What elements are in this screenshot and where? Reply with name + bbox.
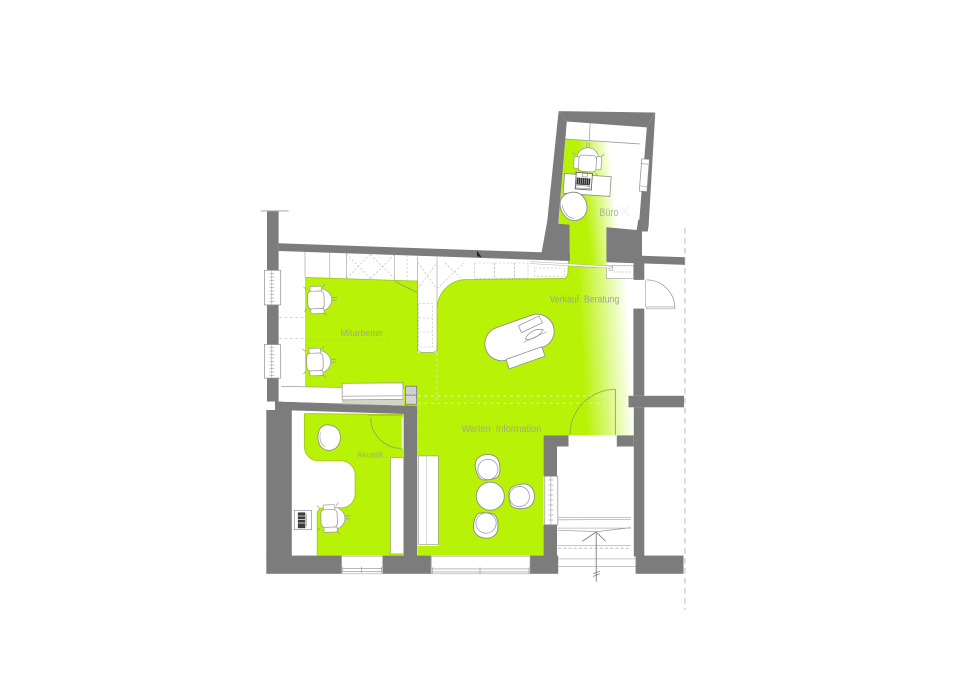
svg-text:Akustik: Akustik: [357, 450, 384, 459]
svg-text:Warten Information: Warten Information: [462, 424, 542, 435]
svg-text:Büro: Büro: [599, 207, 618, 219]
svg-text:Mitarbeiter: Mitarbeiter: [340, 328, 383, 338]
svg-text:Verkauf Beratung: Verkauf Beratung: [550, 295, 620, 306]
